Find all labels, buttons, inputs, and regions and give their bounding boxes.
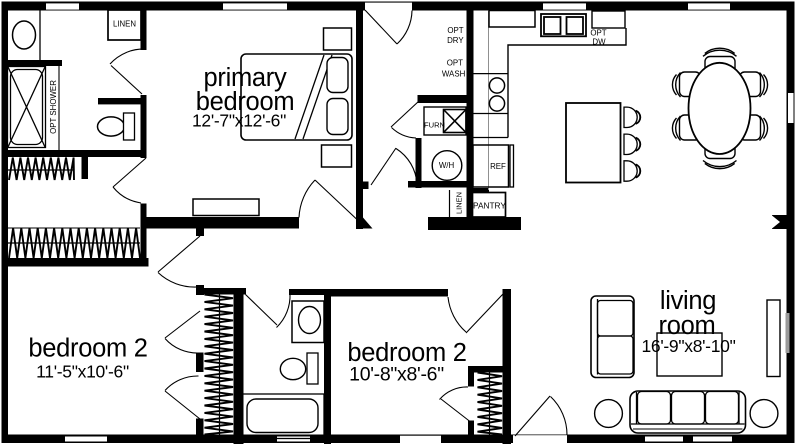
svg-text:W/H: W/H — [439, 161, 455, 170]
svg-text:OPT: OPT — [447, 26, 463, 35]
svg-text:OPT: OPT — [447, 58, 463, 67]
svg-text:OPT: OPT — [590, 28, 606, 37]
svg-text:FURN: FURN — [424, 121, 445, 130]
svg-text:LINEN: LINEN — [113, 20, 136, 29]
svg-text:16'-9"x8'-10": 16'-9"x8'-10" — [641, 336, 735, 356]
svg-text:REF: REF — [490, 162, 506, 171]
svg-text:DRY: DRY — [447, 36, 464, 45]
svg-text:OPT SHOWER: OPT SHOWER — [49, 80, 58, 134]
svg-text:living: living — [660, 287, 716, 315]
svg-text:bedroom 2: bedroom 2 — [28, 335, 147, 363]
svg-text:PANTRY: PANTRY — [473, 201, 506, 211]
svg-text:LINEN: LINEN — [455, 192, 464, 214]
svg-text:11'-5"x10'-6": 11'-5"x10'-6" — [36, 362, 129, 382]
svg-text:12'-7"x12'-6": 12'-7"x12'-6" — [192, 111, 286, 131]
svg-text:WASH: WASH — [442, 69, 466, 78]
svg-text:10'-8"x8'-6": 10'-8"x8'-6" — [349, 364, 444, 386]
